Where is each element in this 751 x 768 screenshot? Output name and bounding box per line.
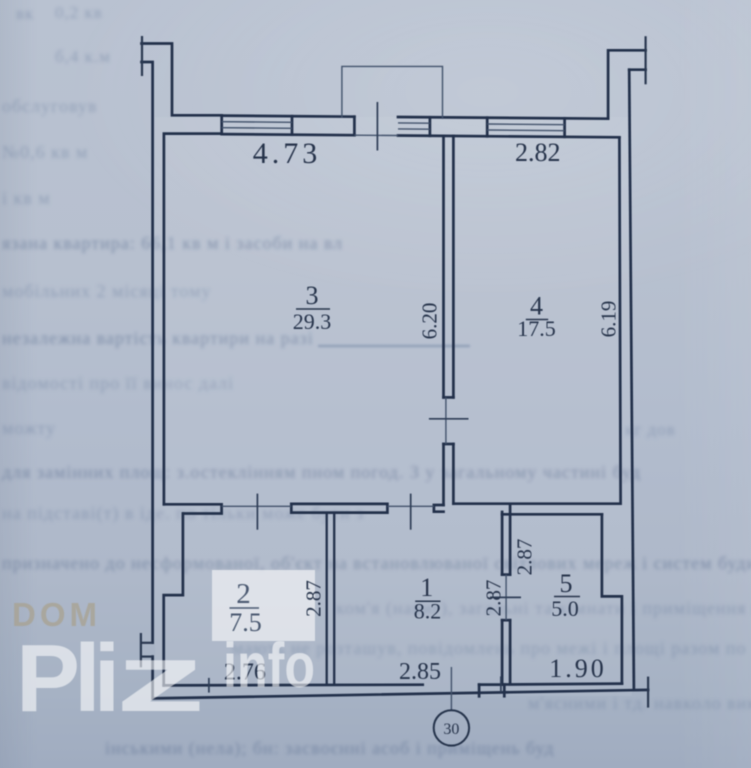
svg-text:P: P — [16, 625, 80, 732]
svg-text:li: li — [74, 625, 114, 732]
svg-text:z: z — [115, 625, 206, 732]
svg-text:info: info — [223, 631, 315, 701]
